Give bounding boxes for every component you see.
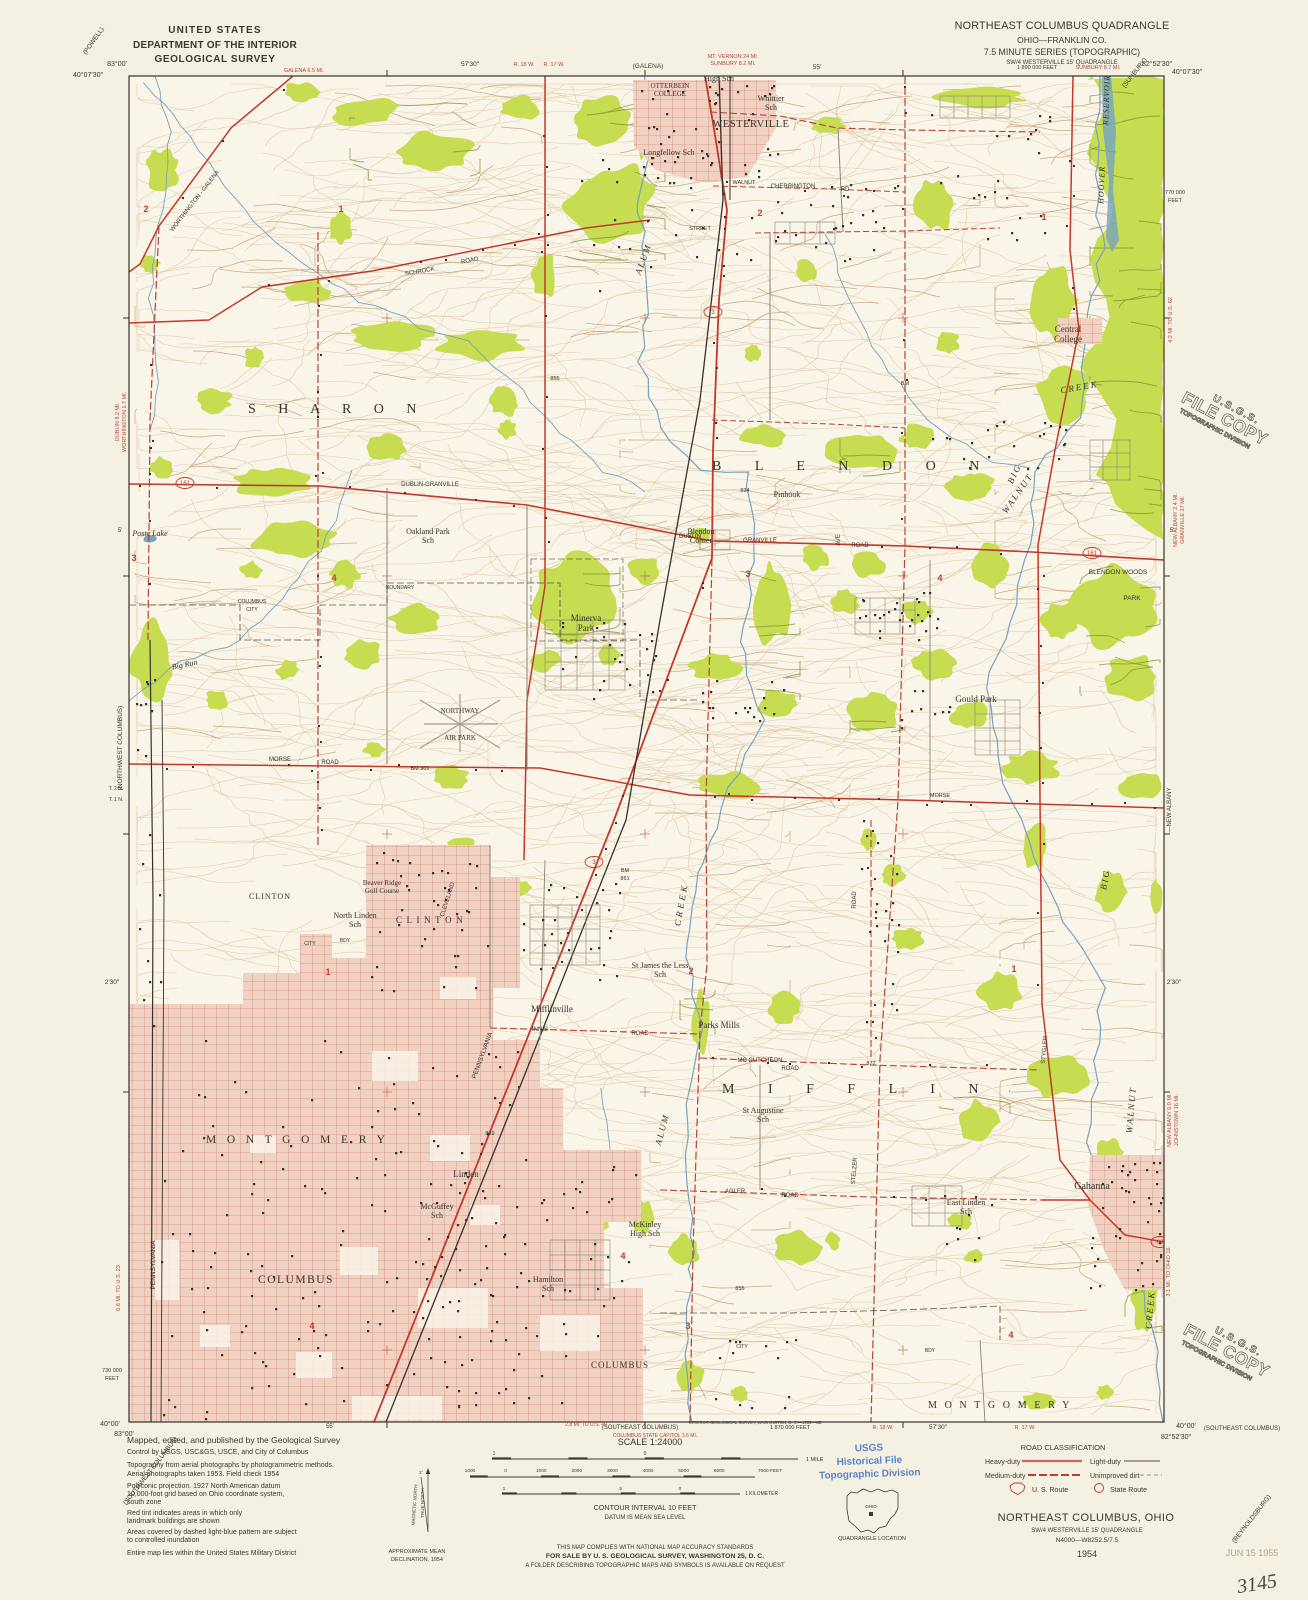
svg-text:Linden: Linden bbox=[453, 1169, 479, 1179]
svg-text:DATUM IS MEAN SEA LEVEL: DATUM IS MEAN SEA LEVEL bbox=[605, 1515, 687, 1521]
svg-text:COLUMBUS: COLUMBUS bbox=[238, 599, 267, 605]
svg-text:82°52'30″: 82°52'30″ bbox=[1142, 60, 1172, 68]
svg-text:Golf Course: Golf Course bbox=[365, 887, 399, 895]
svg-text:1: 1 bbox=[338, 204, 343, 214]
svg-text:THIS MAP COMPLIES WITH NATIONA: THIS MAP COMPLIES WITH NATIONAL MAP ACCU… bbox=[557, 1545, 754, 1551]
svg-text:1 MILE: 1 MILE bbox=[806, 1457, 824, 1463]
svg-text:Poste Lake: Poste Lake bbox=[131, 529, 168, 538]
svg-text:0.8 MI. TO U.S. 23: 0.8 MI. TO U.S. 23 bbox=[116, 1265, 122, 1311]
svg-text:Longfellow Sch: Longfellow Sch bbox=[643, 148, 694, 157]
svg-text:40°07'30″: 40°07'30″ bbox=[73, 71, 103, 79]
svg-text:WALNUT: WALNUT bbox=[732, 180, 756, 186]
svg-text:DUBLIN: DUBLIN bbox=[679, 534, 701, 540]
svg-text:Central: Central bbox=[1055, 324, 1082, 334]
svg-text:Sch: Sch bbox=[765, 103, 777, 112]
svg-text:North Linden: North Linden bbox=[333, 911, 376, 920]
svg-text:BOUNDARY: BOUNDARY bbox=[386, 585, 415, 591]
svg-text:C L I N T O N: C L I N T O N bbox=[396, 915, 464, 925]
svg-text:AGLER: AGLER bbox=[725, 1189, 746, 1195]
svg-text:OHIO: OHIO bbox=[865, 1504, 877, 1509]
svg-text:161: 161 bbox=[1087, 551, 1098, 557]
svg-text:BM: BM bbox=[901, 381, 910, 387]
svg-text:(NORTHWEST COLUMBUS): (NORTHWEST COLUMBUS) bbox=[117, 706, 124, 791]
svg-text:COLUMBUS: COLUMBUS bbox=[591, 1360, 649, 1370]
svg-text:R. 17 W.: R. 17 W. bbox=[1014, 1425, 1036, 1431]
svg-text:PENNSYLVANIA: PENNSYLVANIA bbox=[150, 1240, 157, 1290]
svg-text:STREET: STREET bbox=[689, 226, 711, 232]
svg-text:834: 834 bbox=[740, 488, 749, 494]
svg-text:Gahanna: Gahanna bbox=[1074, 1181, 1110, 1192]
svg-text:Sch: Sch bbox=[349, 920, 361, 929]
svg-text:Control by USGS, USC&GS, USCE,: Control by USGS, USC&GS, USCE, and City … bbox=[127, 1449, 309, 1456]
svg-text:3: 3 bbox=[685, 1321, 690, 1331]
svg-text:Mapped, edited, and published: Mapped, edited, and published by the Geo… bbox=[127, 1435, 341, 1445]
svg-text:DECLINATION, 1954: DECLINATION, 1954 bbox=[391, 1557, 443, 1563]
svg-text:NORTHEAST COLUMBUS QUADRANGLE: NORTHEAST COLUMBUS QUADRANGLE bbox=[955, 20, 1170, 32]
svg-text:730 000: 730 000 bbox=[102, 1368, 122, 1374]
svg-text:OHIO—FRANKLIN CO.: OHIO—FRANKLIN CO. bbox=[1017, 35, 1107, 45]
svg-text:SCALE 1:24000: SCALE 1:24000 bbox=[618, 1437, 683, 1447]
svg-text:1°: 1° bbox=[419, 1470, 424, 1475]
svg-text:3: 3 bbox=[745, 569, 750, 579]
svg-text:BLENDON WOODS: BLENDON WOODS bbox=[1089, 569, 1148, 576]
svg-text:M O N T G O M E R Y: M O N T G O M E R Y bbox=[206, 1134, 389, 1146]
svg-text:57'30″: 57'30″ bbox=[461, 61, 480, 68]
svg-text:T. 1 N.: T. 1 N. bbox=[109, 797, 123, 803]
svg-text:COLLEGE: COLLEGE bbox=[654, 90, 686, 98]
svg-text:to controlled inundation: to controlled inundation bbox=[127, 1537, 199, 1544]
svg-text:40°07'30″: 40°07'30″ bbox=[1172, 68, 1202, 76]
svg-text:AVE: AVE bbox=[836, 534, 842, 546]
svg-text:Polyconic projection. 1927 No: Polyconic projection. 1927 North America… bbox=[127, 1483, 280, 1490]
svg-text:R. 17 W.: R. 17 W. bbox=[543, 62, 565, 68]
svg-text:GALENA 6.5 MI.: GALENA 6.5 MI. bbox=[284, 68, 325, 74]
svg-text:Heavy-duty: Heavy-duty bbox=[985, 1459, 1021, 1466]
svg-text:A FOLDER DESCRIBING TOPOGRAPHI: A FOLDER DESCRIBING TOPOGRAPHIC MAPS AND… bbox=[525, 1563, 785, 1569]
svg-text:S H A R O N: S H A R O N bbox=[248, 402, 426, 417]
svg-text:ROAD: ROAD bbox=[852, 891, 858, 909]
svg-text:Parks Mills: Parks Mills bbox=[698, 1020, 740, 1030]
svg-text:7.5 MINUTE SERIES (TOPOGRAPHIC: 7.5 MINUTE SERIES (TOPOGRAPHIC) bbox=[984, 47, 1140, 57]
svg-text:BM 901: BM 901 bbox=[411, 766, 430, 772]
svg-text:4: 4 bbox=[1008, 1330, 1013, 1340]
svg-text:Gould Park: Gould Park bbox=[955, 694, 997, 704]
svg-text:ROAD: ROAD bbox=[781, 1193, 799, 1199]
svg-text:R. 18 W.: R. 18 W. bbox=[513, 62, 535, 68]
svg-text:(GALENA): (GALENA) bbox=[633, 63, 664, 70]
svg-text:NORTHEAST COLUMBUS, OHIO: NORTHEAST COLUMBUS, OHIO bbox=[998, 1512, 1175, 1524]
svg-text:High Sch: High Sch bbox=[630, 1229, 660, 1238]
svg-text:Topography from aerial photogr: Topography from aerial photographs by ph… bbox=[127, 1462, 334, 1469]
svg-text:McKinley: McKinley bbox=[629, 1220, 661, 1229]
svg-text:855: 855 bbox=[735, 1286, 744, 1292]
svg-text:DUBLIN 8.2 MI.: DUBLIN 8.2 MI. bbox=[115, 402, 121, 441]
svg-text:BDY: BDY bbox=[925, 1348, 936, 1354]
svg-text:4: 4 bbox=[331, 573, 336, 583]
svg-text:2: 2 bbox=[143, 204, 148, 214]
svg-text:2000: 2000 bbox=[571, 1468, 582, 1474]
svg-text:NORTHWAY: NORTHWAY bbox=[441, 707, 480, 715]
svg-text:DUBLIN-GRANVILLE: DUBLIN-GRANVILLE bbox=[401, 482, 459, 488]
svg-text:Historical File: Historical File bbox=[836, 1455, 902, 1468]
svg-text:ROAD: ROAD bbox=[781, 1066, 799, 1072]
svg-text:4: 4 bbox=[620, 1251, 625, 1261]
svg-text:Oakland Park: Oakland Park bbox=[406, 527, 450, 536]
svg-text:7000 FEET: 7000 FEET bbox=[758, 1468, 782, 1474]
svg-text:1: 1 bbox=[1011, 964, 1016, 974]
svg-text:INNIS: INNIS bbox=[532, 1027, 548, 1033]
svg-text:4: 4 bbox=[309, 1321, 314, 1331]
svg-text:3000: 3000 bbox=[607, 1468, 618, 1474]
svg-text:(SOUTHEAST COLUMBUS): (SOUTHEAST COLUMBUS) bbox=[1204, 1426, 1280, 1432]
svg-text:DEPARTMENT OF THE INTERIOR: DEPARTMENT OF THE INTERIOR bbox=[133, 40, 297, 51]
svg-text:Park: Park bbox=[578, 623, 595, 633]
svg-text:83°00': 83°00' bbox=[107, 60, 127, 68]
svg-text:1 890 000 FEET: 1 890 000 FEET bbox=[1017, 65, 1058, 71]
svg-text:CLINTON: CLINTON bbox=[249, 892, 291, 901]
svg-text:INTERIOR-GEOLOGICAL SURVEY, WA: INTERIOR-GEOLOGICAL SURVEY, WASHINGTON, … bbox=[689, 1420, 822, 1425]
svg-text:2'30″: 2'30″ bbox=[1167, 979, 1182, 986]
svg-text:Mifflinville: Mifflinville bbox=[531, 1004, 573, 1014]
svg-text:RD: RD bbox=[841, 187, 850, 193]
svg-text:Sch: Sch bbox=[654, 970, 666, 979]
svg-text:1000: 1000 bbox=[465, 1468, 476, 1474]
svg-text:0: 0 bbox=[679, 1486, 682, 1492]
svg-text:NEW ALBANY 2.4 MI.: NEW ALBANY 2.4 MI. bbox=[1173, 493, 1179, 547]
svg-text:Red tint indicates areas in wh: Red tint indicates areas in which only bbox=[127, 1510, 243, 1517]
svg-text:2: 2 bbox=[757, 208, 762, 218]
svg-text:877: 877 bbox=[866, 1061, 875, 1067]
svg-text:5000: 5000 bbox=[678, 1468, 689, 1474]
svg-text:1 870 000 FEET: 1 870 000 FEET bbox=[770, 1425, 811, 1431]
svg-text:4.2 MI. TO U.S. 62: 4.2 MI. TO U.S. 62 bbox=[1168, 297, 1174, 343]
svg-text:SW/4 WESTERVILLE 15' QUADRANGL: SW/4 WESTERVILLE 15' QUADRANGLE bbox=[1031, 1528, 1142, 1534]
svg-text:Sch: Sch bbox=[542, 1284, 554, 1293]
svg-text:Light-duty: Light-duty bbox=[1090, 1459, 1121, 1466]
svg-text:2'30″: 2'30″ bbox=[105, 979, 120, 986]
svg-text:NEW ALBANY 5.0 MI.: NEW ALBANY 5.0 MI. bbox=[1167, 1093, 1173, 1147]
svg-text:55': 55' bbox=[813, 64, 821, 71]
svg-text:82°52'30″: 82°52'30″ bbox=[1161, 1433, 1191, 1441]
svg-text:869: 869 bbox=[485, 1131, 494, 1137]
svg-text:CONTOUR INTERVAL 10 FEET: CONTOUR INTERVAL 10 FEET bbox=[594, 1503, 697, 1512]
svg-text:USGS: USGS bbox=[855, 1442, 884, 1454]
svg-text:855: 855 bbox=[550, 376, 559, 382]
svg-text:GRANVILLE: GRANVILLE bbox=[743, 538, 777, 544]
svg-text:Pinhook: Pinhook bbox=[774, 490, 801, 499]
svg-text:Sch: Sch bbox=[757, 1115, 769, 1124]
svg-text:HOOVER: HOOVER bbox=[1096, 166, 1106, 205]
svg-text:Areas covered by dashed light-: Areas covered by dashed light-blue patte… bbox=[127, 1529, 297, 1536]
svg-text:SUNBURY 8.2 MI.: SUNBURY 8.2 MI. bbox=[710, 61, 756, 67]
svg-text:PARK: PARK bbox=[1123, 595, 1141, 602]
svg-text:40°00': 40°00' bbox=[100, 1420, 120, 1428]
svg-text:AIR PARK: AIR PARK bbox=[444, 734, 476, 742]
svg-text:1: 1 bbox=[325, 967, 330, 977]
svg-text:MC CUTCHEON: MC CUTCHEON bbox=[738, 1058, 783, 1064]
svg-text:4: 4 bbox=[937, 573, 942, 583]
svg-text:Aerial photographs taken 1953.: Aerial photographs taken 1953. Field che… bbox=[127, 1471, 279, 1478]
svg-text:40°00': 40°00' bbox=[1176, 1422, 1196, 1430]
svg-text:UNITED STATES: UNITED STATES bbox=[168, 25, 262, 36]
svg-text:CITY: CITY bbox=[246, 607, 258, 613]
svg-text:M O N T G O M E R Y: M O N T G O M E R Y bbox=[928, 1400, 1072, 1411]
svg-text:FEET: FEET bbox=[1168, 198, 1183, 204]
svg-text:6000: 6000 bbox=[714, 1468, 725, 1474]
svg-text:5': 5' bbox=[118, 527, 123, 534]
svg-text:(SOUTHEAST COLUMBUS): (SOUTHEAST COLUMBUS) bbox=[602, 1425, 678, 1431]
svg-text:10,000-foot grid based on Ohio: 10,000-foot grid based on Ohio coordinat… bbox=[127, 1491, 284, 1498]
svg-text:CITY: CITY bbox=[304, 941, 316, 947]
svg-text:St Augustine: St Augustine bbox=[742, 1106, 784, 1115]
svg-text:FOR SALE BY U. S. GEOLOGICAL S: FOR SALE BY U. S. GEOLOGICAL SURVEY, WAS… bbox=[546, 1553, 764, 1560]
svg-text:State Route: State Route bbox=[1110, 1487, 1147, 1494]
svg-text:WORTHINGTON 1.7 MI.: WORTHINGTON 1.7 MI. bbox=[122, 391, 128, 452]
svg-text:GRANVILLE 17 MI.: GRANVILLE 17 MI. bbox=[1180, 496, 1186, 544]
svg-text:161: 161 bbox=[180, 481, 191, 487]
svg-text:College: College bbox=[1054, 334, 1082, 344]
svg-text:—NEW ALBANY: —NEW ALBANY bbox=[1167, 787, 1173, 832]
svg-text:TRUE NORTH: TRUE NORTH bbox=[420, 1488, 425, 1517]
svg-text:3: 3 bbox=[131, 553, 136, 563]
svg-text:OTTERBEIN: OTTERBEIN bbox=[651, 82, 690, 90]
svg-text:MORSE: MORSE bbox=[930, 793, 951, 799]
svg-text:U. S. Route: U. S. Route bbox=[1032, 1487, 1068, 1494]
svg-text:B L E N D O N: B L E N D O N bbox=[712, 459, 994, 474]
svg-text:COLUMBUS: COLUMBUS bbox=[258, 1274, 334, 1286]
svg-text:55': 55' bbox=[326, 1424, 334, 1430]
svg-text:1000: 1000 bbox=[536, 1468, 547, 1474]
svg-text:1: 1 bbox=[503, 1486, 506, 1492]
svg-text:ROAD CLASSIFICATION: ROAD CLASSIFICATION bbox=[1021, 1443, 1106, 1452]
svg-text:1954: 1954 bbox=[1077, 1549, 1097, 1559]
svg-text:CITY: CITY bbox=[736, 1344, 748, 1350]
svg-text:Sch: Sch bbox=[431, 1211, 443, 1220]
svg-text:0: 0 bbox=[644, 1451, 647, 1457]
svg-text:770 000: 770 000 bbox=[1165, 190, 1185, 196]
svg-text:T. 2 N.: T. 2 N. bbox=[109, 786, 123, 792]
svg-text:R. 18 W.: R. 18 W. bbox=[872, 1425, 894, 1431]
svg-text:WESTERVILLE: WESTERVILLE bbox=[713, 119, 790, 130]
svg-text:BDY: BDY bbox=[340, 938, 351, 944]
svg-text:QUADRANGLE LOCATION: QUADRANGLE LOCATION bbox=[838, 1536, 906, 1542]
svg-text:0: 0 bbox=[504, 1468, 507, 1474]
svg-text:Whittier: Whittier bbox=[758, 94, 785, 103]
svg-text:861: 861 bbox=[620, 876, 629, 882]
svg-text:CHERRINGTON: CHERRINGTON bbox=[771, 184, 816, 190]
svg-text:MT. VERNON 24 MI.: MT. VERNON 24 MI. bbox=[708, 54, 759, 60]
svg-text:Medium-duty: Medium-duty bbox=[985, 1473, 1026, 1480]
svg-text:4000: 4000 bbox=[643, 1468, 654, 1474]
svg-text:62: 62 bbox=[1157, 1240, 1164, 1246]
svg-text:ROAD: ROAD bbox=[631, 1031, 649, 1037]
svg-text:GEOLOGICAL SURVEY: GEOLOGICAL SURVEY bbox=[155, 54, 276, 65]
svg-text:2.8 MI. TO U.S. 40: 2.8 MI. TO U.S. 40 bbox=[565, 1422, 607, 1428]
svg-text:SUNBURY 8.7 MI.: SUNBURY 8.7 MI. bbox=[1075, 65, 1121, 71]
svg-text:ROAD: ROAD bbox=[851, 543, 869, 549]
svg-text:Entire map lies within the Uni: Entire map lies within the United States… bbox=[127, 1550, 296, 1557]
svg-text:Hamilton: Hamilton bbox=[533, 1275, 563, 1284]
svg-text:3.1 MI. TO OHIO 16: 3.1 MI. TO OHIO 16 bbox=[1166, 1247, 1172, 1296]
svg-text:ROAD: ROAD bbox=[321, 760, 339, 766]
svg-text:JOHNSTOWN 16 MI.: JOHNSTOWN 16 MI. bbox=[1174, 1093, 1180, 1146]
svg-text:south zone: south zone bbox=[127, 1499, 161, 1506]
svg-text:1: 1 bbox=[1041, 212, 1046, 222]
svg-text:1 KILOMETER: 1 KILOMETER bbox=[745, 1491, 778, 1497]
svg-text:Sch: Sch bbox=[960, 1207, 972, 1216]
svg-text:Unimproved dirt: Unimproved dirt bbox=[1090, 1473, 1139, 1480]
svg-text:MORSE: MORSE bbox=[269, 757, 291, 763]
svg-text:FEET: FEET bbox=[105, 1376, 120, 1382]
svg-text:BM: BM bbox=[621, 868, 630, 874]
svg-text:East Linden: East Linden bbox=[947, 1198, 985, 1207]
svg-text:1: 1 bbox=[493, 1451, 496, 1457]
svg-text:Minerva: Minerva bbox=[571, 613, 602, 623]
svg-text:2: 2 bbox=[688, 966, 693, 976]
svg-text:.5: .5 bbox=[618, 1486, 622, 1492]
svg-text:Sch: Sch bbox=[422, 536, 434, 545]
svg-text:APPROXIMATE MEAN: APPROXIMATE MEAN bbox=[389, 1549, 446, 1555]
svg-text:Beaver Ridge: Beaver Ridge bbox=[363, 879, 401, 887]
svg-text:McGuffey: McGuffey bbox=[420, 1202, 453, 1211]
svg-text:N4000—W8252.5/7.5: N4000—W8252.5/7.5 bbox=[1056, 1537, 1119, 1544]
svg-text:M I F F L I N: M I F F L I N bbox=[722, 1082, 994, 1097]
svg-text:St James the Less: St James the Less bbox=[632, 961, 689, 970]
svg-text:landmark buildings are shown: landmark buildings are shown bbox=[127, 1518, 220, 1525]
svg-text:RESERVOIR: RESERVOIR bbox=[1101, 75, 1112, 127]
svg-text:57'30″: 57'30″ bbox=[929, 1424, 948, 1431]
svg-text:JUN 15 1955: JUN 15 1955 bbox=[1226, 1548, 1279, 1558]
